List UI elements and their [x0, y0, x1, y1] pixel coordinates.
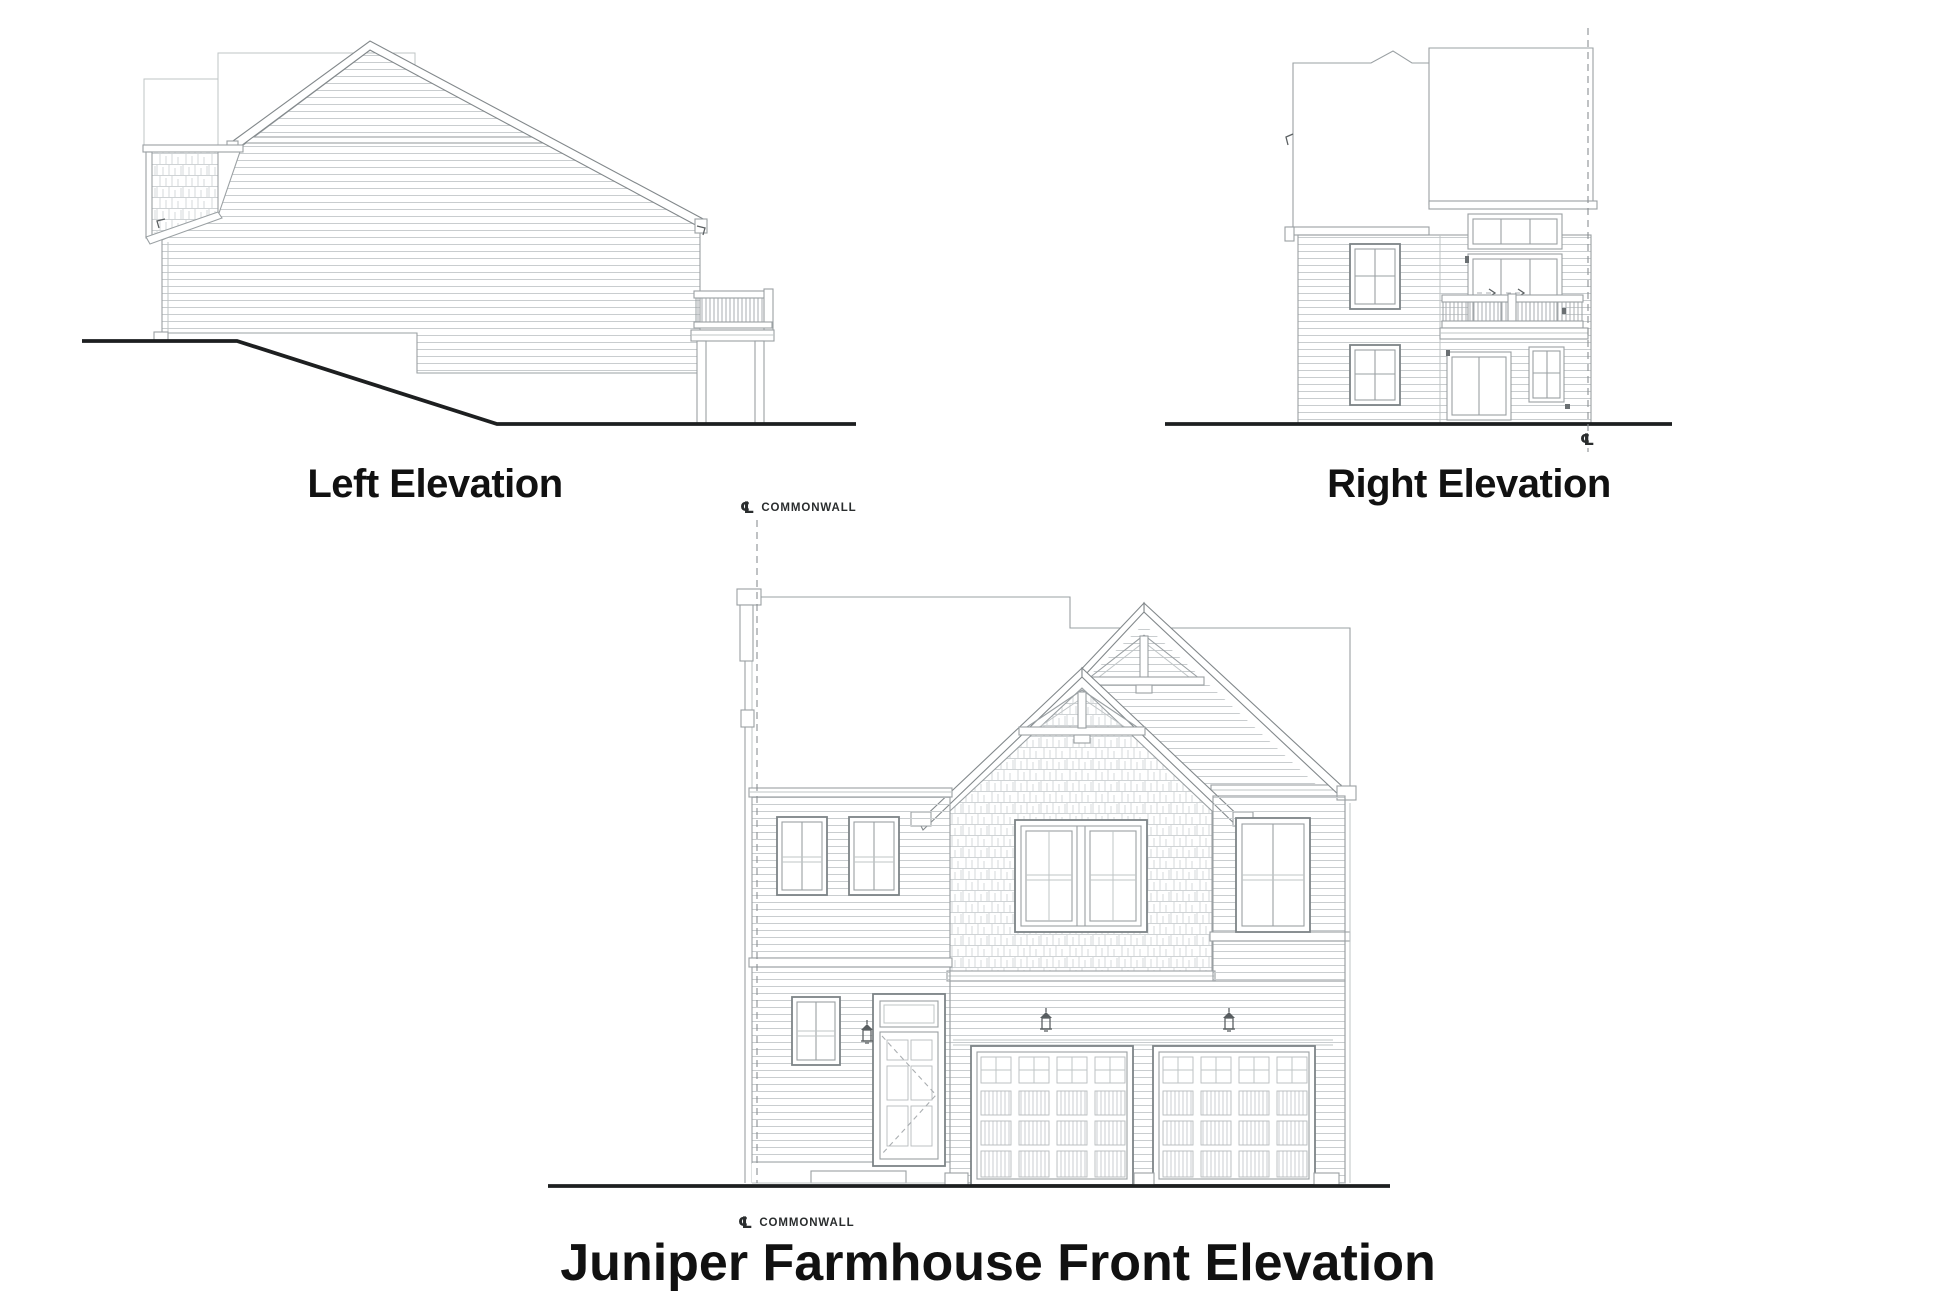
- front-elevation-drawing: [548, 520, 1390, 1186]
- commonwall-label-bottom: ℄COMMONWALL: [738, 1213, 855, 1232]
- centerline-symbol-right-elevation: ℄: [1580, 430, 1594, 449]
- right-elevation-drawing: [1165, 28, 1672, 452]
- architectural-drawing-sheet: Left Elevation Right Elevation Juniper F…: [0, 0, 1960, 1307]
- commonwall-label-top: ℄COMMONWALL: [740, 498, 857, 517]
- left-elevation-title: Left Elevation: [235, 462, 635, 506]
- centerline-symbol: ℄: [740, 498, 754, 517]
- commonwall-text: COMMONWALL: [759, 1217, 854, 1229]
- right-elevation-title: Right Elevation: [1269, 462, 1669, 506]
- front-elevation-title: Juniper Farmhouse Front Elevation: [448, 1234, 1548, 1292]
- centerline-symbol: ℄: [738, 1213, 752, 1232]
- elevation-drawings: [0, 0, 1960, 1307]
- commonwall-text: COMMONWALL: [761, 502, 856, 514]
- left-elevation-drawing: [82, 41, 856, 424]
